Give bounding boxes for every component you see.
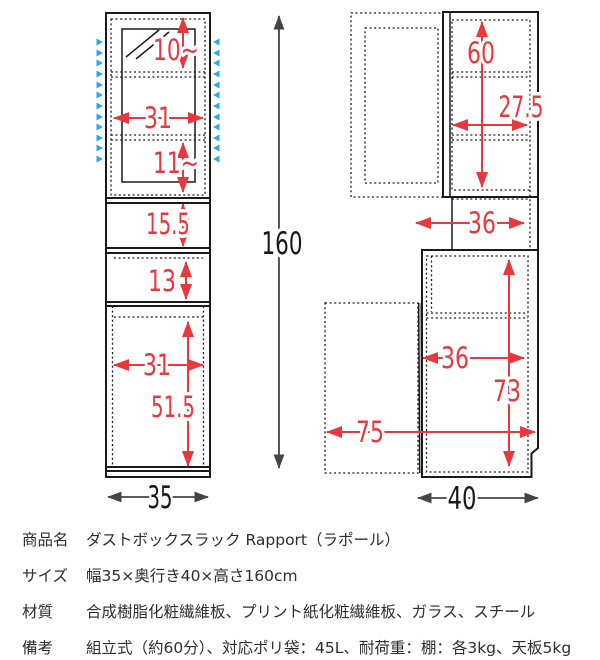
- spec-row-size: サイズ 幅35×奥行き40×高さ160cm: [0, 557, 600, 593]
- shelf-pin-arrows-right: [213, 39, 220, 163]
- dim-lower-inner-width: 31: [143, 348, 171, 382]
- front-view-drawing: 10~ 31 11~ 15.5 13 31 51.5 35 160: [97, 13, 303, 516]
- lower-cabinet-outline: [422, 250, 538, 477]
- lower-shelf-dotted-lines: [427, 313, 529, 318]
- spec-value: 幅35×奥行き40×高さ160cm: [86, 564, 600, 586]
- dim-glass-lower-gap: 11~: [153, 146, 199, 180]
- dim-upper-inner-depth: 27.5: [499, 90, 544, 124]
- spec-row-notes: 備考 組立式（約60分）、対応ポリ袋：45L、耐荷重：棚：各3kg、天板5kg: [0, 629, 600, 660]
- dim-glass-inner-width: 31: [144, 101, 172, 135]
- spec-label: サイズ: [22, 564, 86, 586]
- product-dimension-sheet: 10~ 31 11~ 15.5 13 31 51.5 35 160: [0, 0, 600, 660]
- lower-door-panel-lines: [419, 303, 422, 473]
- spec-value: 合成樹脂化粧繊維板、プリント紙化粧繊維板、ガラス、スチール: [86, 600, 600, 622]
- upper-door-open-inner-dotted: [365, 28, 438, 183]
- spec-label: 商品名: [22, 528, 86, 550]
- spec-row-product-name: 商品名 ダストボックスラック Rapport（ラポール）: [0, 521, 600, 557]
- spec-value: 組立式（約60分）、対応ポリ袋：45L、耐荷重：棚：各3kg、天板5kg: [86, 636, 600, 658]
- dim-counter-depth: 36: [468, 206, 496, 240]
- dim-total-width: 35: [148, 480, 173, 516]
- spec-label: 材質: [22, 600, 86, 622]
- spec-row-material: 材質 合成樹脂化粧繊維板、プリント紙化粧繊維板、ガラス、スチール: [0, 593, 600, 629]
- dim-door-open-depth: 75: [356, 415, 384, 449]
- spec-label: 備考: [22, 636, 86, 658]
- shelf-pin-arrows-left: [97, 39, 104, 163]
- dim-lower-inner-depth: 36: [441, 341, 469, 375]
- dim-lower-inner-height: 51.5: [151, 390, 195, 424]
- spec-table: 商品名 ダストボックスラック Rapport（ラポール） サイズ 幅35×奥行き…: [0, 521, 600, 660]
- dimension-diagram: 10~ 31 11~ 15.5 13 31 51.5 35 160: [0, 0, 600, 518]
- spec-value: ダストボックスラック Rapport（ラポール）: [86, 528, 600, 550]
- dim-middle-shelf-height: 13: [148, 264, 176, 298]
- dim-glass-upper-gap: 10~: [153, 33, 199, 67]
- lower-compartment-dotted: [113, 306, 204, 467]
- dim-open-shelf-height: 15.5: [146, 207, 190, 241]
- side-view-drawing: 60 27.5 36 36 73 75 40: [325, 12, 544, 517]
- dim-total-height: 160: [262, 226, 303, 262]
- dim-lower-inner-height: 73: [493, 374, 521, 408]
- dim-total-depth: 40: [448, 481, 477, 517]
- dim-upper-inner-height: 60: [467, 36, 495, 70]
